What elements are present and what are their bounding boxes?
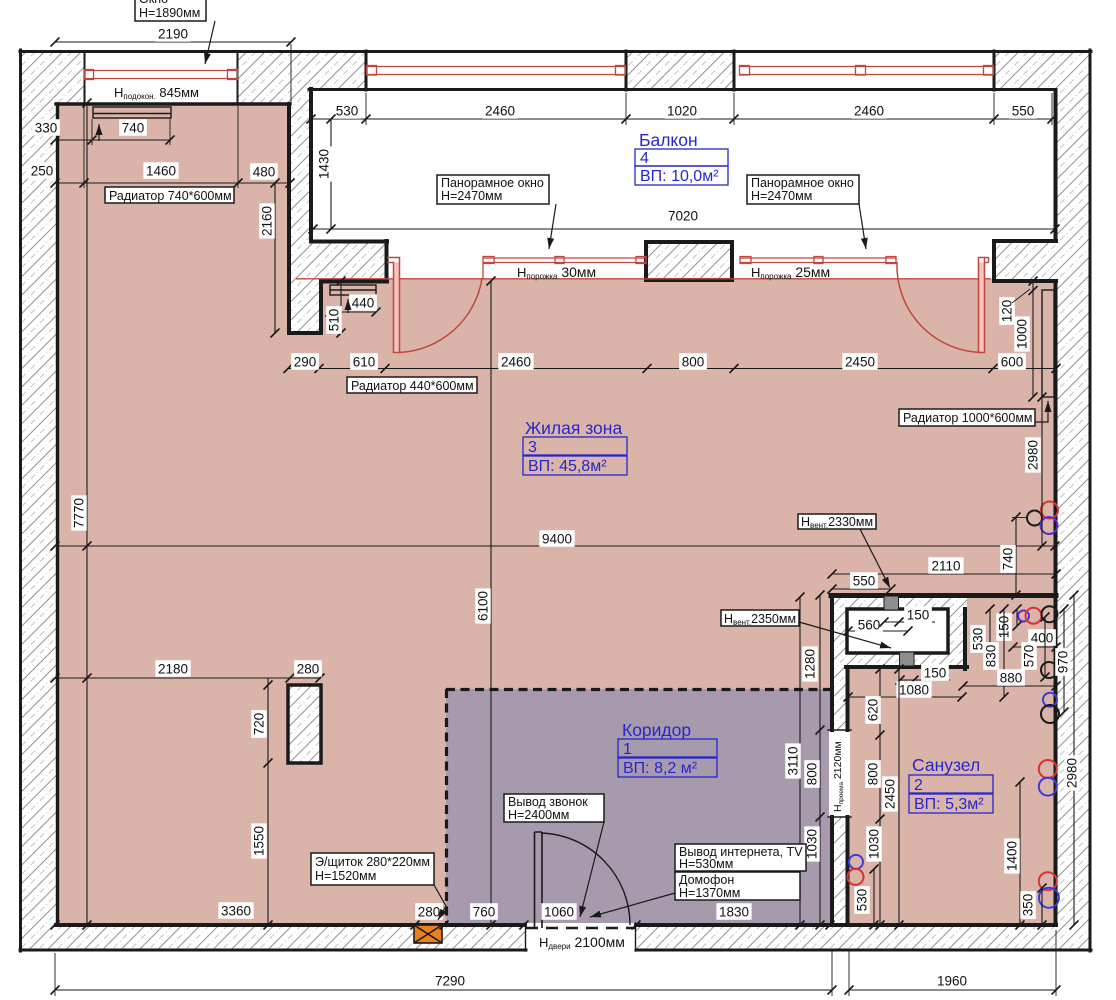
svg-text:530: 530 xyxy=(336,104,359,119)
svg-text:7290: 7290 xyxy=(435,974,465,989)
svg-text:1400: 1400 xyxy=(1005,841,1020,871)
svg-text:280: 280 xyxy=(297,662,320,677)
svg-text:2460: 2460 xyxy=(485,104,515,119)
svg-text:Жилая зона: Жилая зона xyxy=(525,418,622,438)
svg-text:Н=1520мм: Н=1520мм xyxy=(315,869,376,883)
svg-text:2460: 2460 xyxy=(501,355,531,370)
svg-text:2460: 2460 xyxy=(854,104,884,119)
svg-text:740: 740 xyxy=(1001,548,1016,571)
svg-text:3: 3 xyxy=(528,439,537,456)
svg-text:800: 800 xyxy=(805,763,820,786)
svg-text:880: 880 xyxy=(1000,671,1023,686)
svg-text:2160: 2160 xyxy=(260,206,275,236)
svg-text:2: 2 xyxy=(914,777,923,794)
svg-text:1030: 1030 xyxy=(805,829,820,859)
svg-text:1020: 1020 xyxy=(667,104,697,119)
svg-text:550: 550 xyxy=(1012,104,1035,119)
svg-text:4: 4 xyxy=(640,150,649,167)
svg-text:Балкон: Балкон xyxy=(639,130,698,150)
svg-text:290: 290 xyxy=(294,355,317,370)
svg-text:ВП: 8,2 м²: ВП: 8,2 м² xyxy=(623,760,698,777)
svg-text:ВП: 10,0м²: ВП: 10,0м² xyxy=(640,168,719,185)
svg-text:1960: 1960 xyxy=(937,974,967,989)
svg-text:570: 570 xyxy=(1022,645,1037,668)
svg-text:2110: 2110 xyxy=(931,559,960,574)
svg-text:1000: 1000 xyxy=(1015,319,1030,349)
svg-text:480: 480 xyxy=(253,165,276,180)
svg-text:Панорамное окно: Панорамное окно xyxy=(751,176,854,190)
svg-text:720: 720 xyxy=(252,713,267,736)
svg-text:Н=530мм: Н=530мм xyxy=(679,857,733,871)
svg-text:1830: 1830 xyxy=(719,905,749,920)
svg-text:1460: 1460 xyxy=(146,164,176,179)
svg-text:510: 510 xyxy=(327,309,342,332)
svg-text:2980: 2980 xyxy=(1026,440,1041,470)
svg-text:740: 740 xyxy=(122,121,145,136)
svg-text:970: 970 xyxy=(1056,651,1071,674)
svg-text:1080: 1080 xyxy=(899,683,929,698)
svg-text:830: 830 xyxy=(984,645,999,668)
svg-text:350: 350 xyxy=(1021,894,1036,917)
svg-text:800: 800 xyxy=(866,763,881,786)
svg-text:Домофон: Домофон xyxy=(679,873,734,887)
svg-text:440: 440 xyxy=(352,296,375,311)
svg-text:Н=2470мм: Н=2470мм xyxy=(441,189,502,203)
svg-text:2190: 2190 xyxy=(158,27,188,42)
svg-text:Санузел: Санузел xyxy=(912,755,980,775)
svg-text:6100: 6100 xyxy=(476,591,491,621)
svg-text:ВП: 45,8м²: ВП: 45,8м² xyxy=(528,458,607,475)
svg-text:9400: 9400 xyxy=(542,532,572,547)
svg-text:Н=2470мм: Н=2470мм xyxy=(751,189,812,203)
svg-text:3360: 3360 xyxy=(221,904,251,919)
svg-text:7770: 7770 xyxy=(72,498,87,528)
svg-text:Панорамное окно: Панорамное окно xyxy=(441,176,544,190)
svg-text:560: 560 xyxy=(858,618,881,633)
svg-text:1550: 1550 xyxy=(252,826,267,856)
svg-text:2980: 2980 xyxy=(1065,758,1080,788)
svg-text:150: 150 xyxy=(924,666,947,681)
svg-text:ВП: 5,3м²: ВП: 5,3м² xyxy=(914,796,984,813)
svg-text:7020: 7020 xyxy=(668,209,698,224)
svg-text:2450: 2450 xyxy=(883,779,898,809)
svg-text:1060: 1060 xyxy=(544,905,574,920)
svg-text:1: 1 xyxy=(623,741,632,758)
svg-text:760: 760 xyxy=(473,905,496,920)
svg-text:Радиатор 740*600мм: Радиатор 740*600мм xyxy=(109,189,232,203)
svg-text:550: 550 xyxy=(853,574,876,589)
svg-text:Радиатор 440*600мм: Радиатор 440*600мм xyxy=(351,379,474,393)
svg-text:330: 330 xyxy=(35,121,58,136)
svg-text:Вывод звонок: Вывод звонок xyxy=(508,795,588,809)
svg-text:250: 250 xyxy=(31,164,54,179)
svg-text:150: 150 xyxy=(907,608,930,623)
svg-text:610: 610 xyxy=(353,355,376,370)
svg-text:1280: 1280 xyxy=(803,649,818,679)
svg-text:600: 600 xyxy=(1001,355,1024,370)
svg-text:2180: 2180 xyxy=(158,662,188,677)
svg-text:3110: 3110 xyxy=(786,746,801,775)
svg-text:530: 530 xyxy=(855,889,870,912)
svg-text:280: 280 xyxy=(418,905,441,920)
svg-text:1430: 1430 xyxy=(317,149,332,179)
svg-text:1030: 1030 xyxy=(867,829,882,859)
svg-text:Н=1890мм: Н=1890мм xyxy=(139,6,200,20)
svg-text:2450: 2450 xyxy=(845,355,875,370)
svg-text:Коридор: Коридор xyxy=(622,720,691,740)
svg-text:800: 800 xyxy=(682,355,705,370)
svg-text:620: 620 xyxy=(866,699,881,722)
svg-text:Э/щиток 280*220мм: Э/щиток 280*220мм xyxy=(315,855,430,869)
svg-text:Н=2400мм: Н=2400мм xyxy=(508,808,569,822)
svg-text:Радиатор 1000*600мм: Радиатор 1000*600мм xyxy=(903,411,1033,425)
svg-text:Н=1370мм: Н=1370мм xyxy=(679,886,740,900)
